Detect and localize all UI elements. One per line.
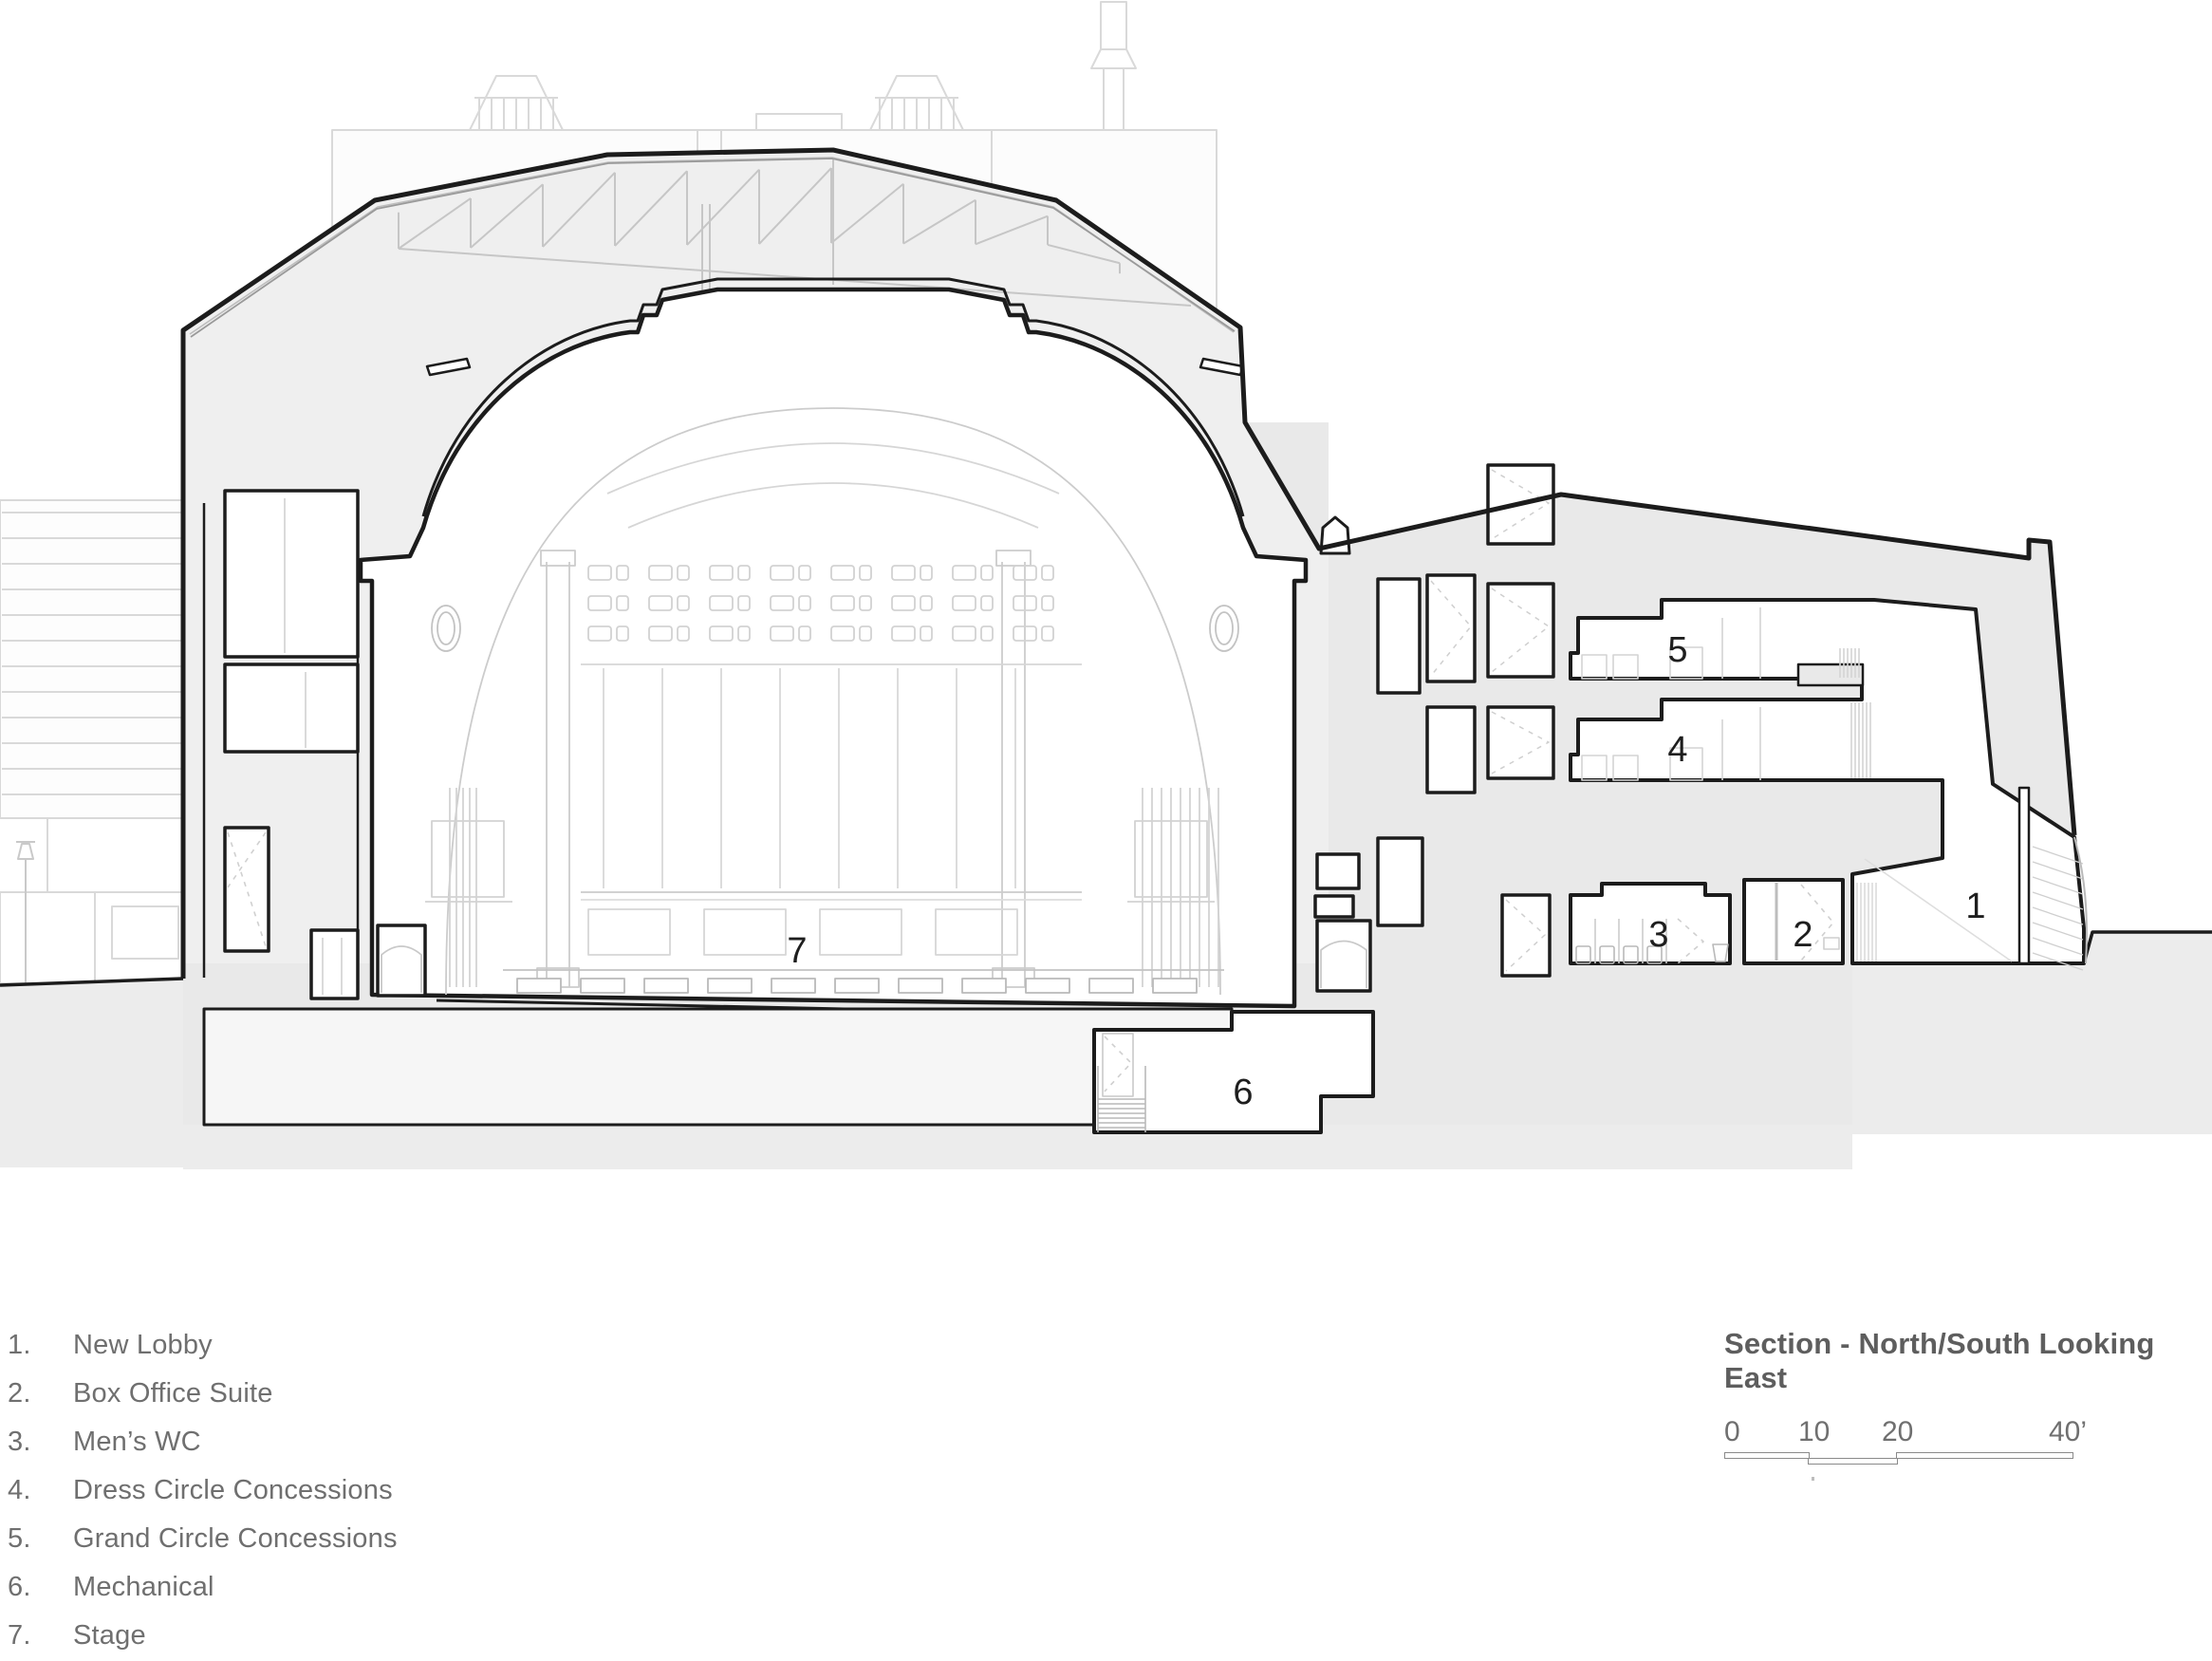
elevator-shaft bbox=[1427, 707, 1475, 793]
balcony-slab-edge bbox=[1798, 664, 1863, 685]
drawing-sheet: { "view": { "title": "Section - North/So… bbox=[0, 0, 2212, 1656]
scale-minor-tick bbox=[1812, 1477, 1814, 1481]
legend-number: 7. bbox=[8, 1620, 73, 1652]
label-new-lobby: 1 bbox=[1965, 886, 1985, 926]
street-lamp-icon bbox=[16, 842, 35, 983]
arched-door-left bbox=[378, 925, 425, 996]
scale-bar-numbers: 0 10 20 40’ bbox=[1724, 1416, 2212, 1448]
room-left-mid bbox=[225, 664, 358, 752]
understage-basement bbox=[204, 1009, 1232, 1125]
legend-item-box-office: 2. Box Office Suite bbox=[8, 1370, 615, 1418]
stair-by-wc bbox=[1502, 895, 1550, 976]
legend-label: Men’s WC bbox=[73, 1427, 201, 1458]
lobby-glazing-post bbox=[2019, 788, 2029, 963]
room-legend: 1. New Lobby 2. Box Office Suite 3. Men’… bbox=[8, 1321, 615, 1660]
label-dress-circle: 4 bbox=[1667, 730, 1687, 770]
scale-tick-0: 0 bbox=[1724, 1416, 1740, 1448]
legend-label: Stage bbox=[73, 1620, 146, 1652]
label-mens-wc: 3 bbox=[1648, 915, 1668, 955]
room-left-upper bbox=[225, 491, 358, 657]
label-mechanical: 6 bbox=[1233, 1073, 1253, 1112]
scale-segment bbox=[1724, 1452, 1810, 1459]
neighbor-building bbox=[0, 500, 197, 983]
view-title: Section - North/South Looking East bbox=[1724, 1327, 2212, 1395]
legend-item-mechanical: 6. Mechanical bbox=[8, 1563, 615, 1612]
legend-number: 1. bbox=[8, 1330, 73, 1361]
scale-bar bbox=[1724, 1452, 2073, 1469]
legend-label: Mechanical bbox=[73, 1572, 214, 1603]
legend-label: Grand Circle Concessions bbox=[73, 1523, 398, 1555]
stair-shaft-left bbox=[225, 828, 269, 951]
arched-door-right bbox=[1317, 921, 1370, 991]
legend-item-dress-circle: 4. Dress Circle Concessions bbox=[8, 1466, 615, 1515]
label-stage: 7 bbox=[787, 931, 807, 971]
roof-cupola-left bbox=[470, 76, 563, 130]
legend-label: Box Office Suite bbox=[73, 1378, 273, 1409]
legend-item-stage: 7. Stage bbox=[8, 1612, 615, 1660]
legend-label: New Lobby bbox=[73, 1330, 213, 1361]
room-stage-void bbox=[361, 289, 1306, 1006]
legend-label: Dress Circle Concessions bbox=[73, 1475, 393, 1506]
legend-number: 5. bbox=[8, 1523, 73, 1555]
roof-cupola-right bbox=[870, 76, 963, 130]
legend-item-grand-circle: 5. Grand Circle Concessions bbox=[8, 1515, 615, 1563]
chimney bbox=[1091, 2, 1136, 130]
title-block: Section - North/South Looking East 0 10 … bbox=[1724, 1327, 2212, 1469]
label-grand-circle: 5 bbox=[1667, 630, 1687, 670]
scale-tick-10: 10 bbox=[1798, 1416, 1830, 1448]
legend-number: 4. bbox=[8, 1475, 73, 1506]
shaft-lower bbox=[1488, 707, 1553, 778]
scale-segment bbox=[1808, 1458, 1898, 1465]
legend-number: 6. bbox=[8, 1572, 73, 1603]
legend-item-mens-wc: 3. Men’s WC bbox=[8, 1418, 615, 1466]
label-box-office: 2 bbox=[1793, 915, 1812, 955]
legend-item-new-lobby: 1. New Lobby bbox=[8, 1321, 615, 1370]
scale-tick-20: 20 bbox=[1882, 1416, 1913, 1448]
scale-tick-40: 40’ bbox=[2049, 1416, 2087, 1448]
legend-number: 3. bbox=[8, 1427, 73, 1458]
legend-number: 2. bbox=[8, 1378, 73, 1409]
landing-room bbox=[1427, 575, 1475, 681]
vestibule-left bbox=[311, 930, 358, 998]
scale-segment bbox=[1896, 1452, 2073, 1459]
